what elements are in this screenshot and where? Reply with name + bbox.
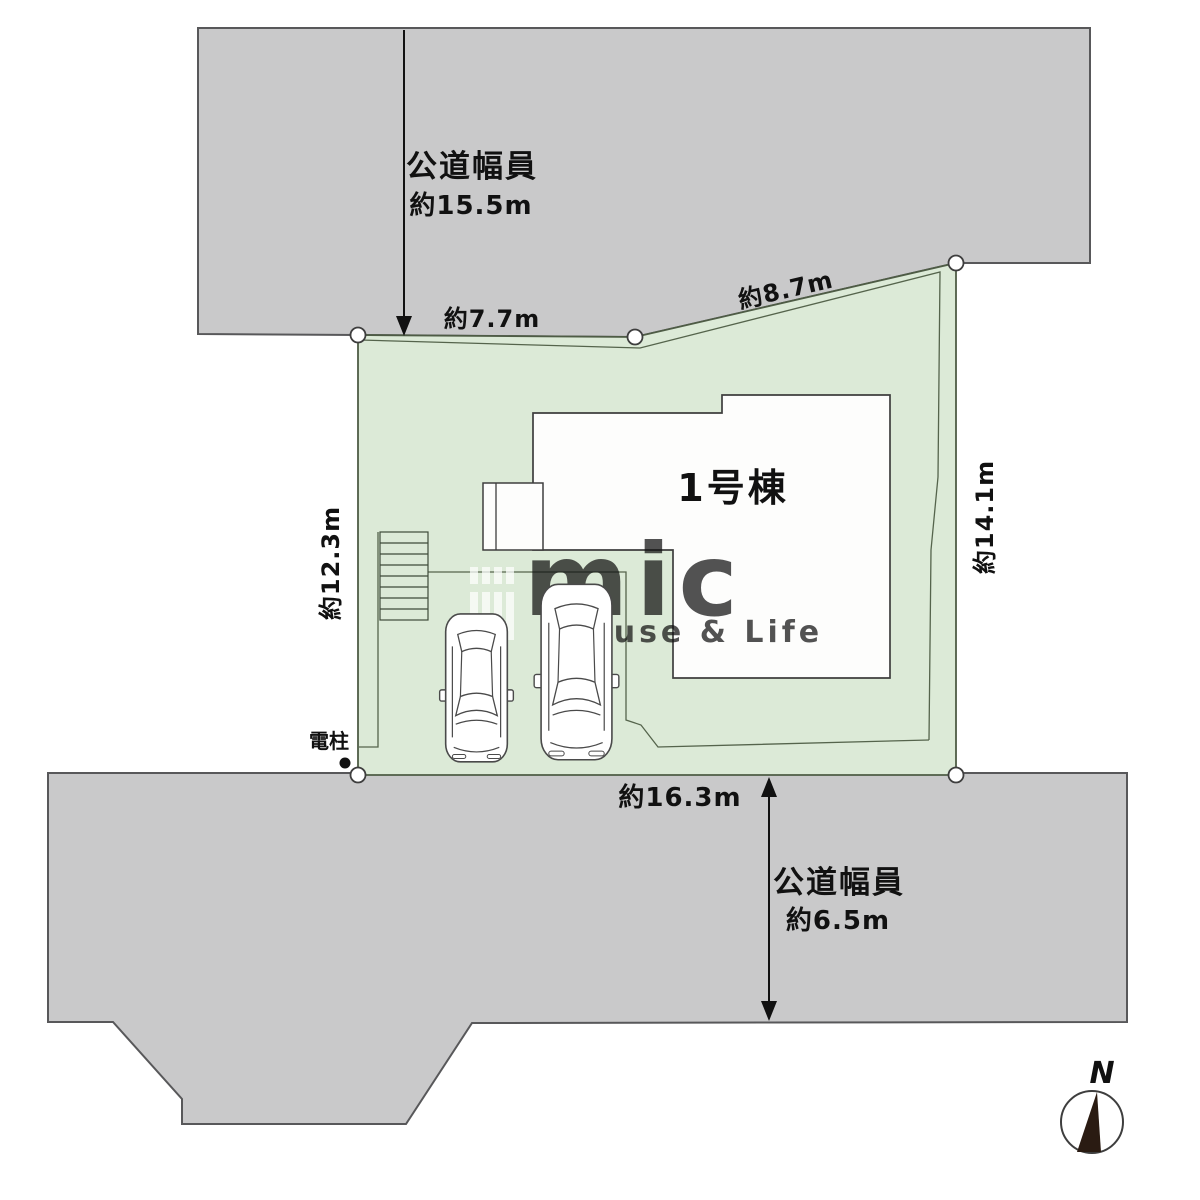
building-label: 1号棟	[677, 466, 788, 510]
dim-right-label: 約14.1m	[971, 460, 999, 574]
dim-left-label: 約12.3m	[317, 506, 345, 620]
car-icon	[440, 614, 514, 762]
boundary-point	[351, 328, 366, 343]
top-road-label: 公道幅員	[406, 149, 538, 185]
car-icon	[534, 584, 619, 759]
bottom-road-shape	[48, 773, 1127, 1124]
compass-icon: N	[1061, 1056, 1123, 1153]
boundary-point	[351, 768, 366, 783]
boundary-point	[628, 330, 643, 345]
compass-north-label: N	[1089, 1056, 1114, 1091]
site-plan-canvas: mic House & Life 電柱 公道幅員 約15.5m 約7.7m 約8…	[0, 0, 1200, 1200]
boundary-point	[949, 768, 964, 783]
bottom-road-width-label: 約6.5m	[786, 905, 890, 936]
utility-pole-dot	[340, 758, 351, 769]
boundary-point	[949, 256, 964, 271]
stairs-icon	[380, 532, 428, 620]
dim-bottom-label: 約16.3m	[618, 782, 741, 813]
dim-top-left-label: 約7.7m	[444, 305, 541, 333]
top-road-width-label: 約15.5m	[409, 190, 532, 221]
utility-pole-label: 電柱	[309, 729, 349, 753]
site-plan-page: mic House & Life 電柱 公道幅員 約15.5m 約7.7m 約8…	[0, 0, 1200, 1200]
bottom-road-label: 公道幅員	[773, 865, 905, 901]
